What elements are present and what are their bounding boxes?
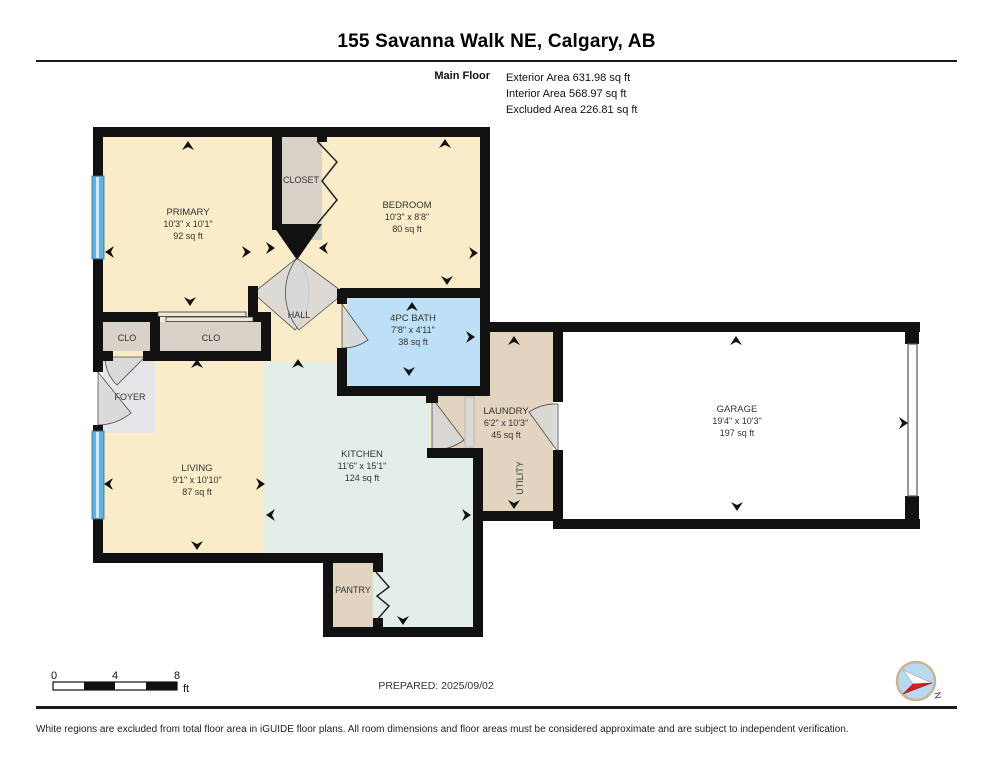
bath-dims: 7'8" x 4'11" — [391, 325, 435, 335]
kitchen-dims: 11'6" x 15'1" — [338, 461, 387, 471]
utility-label: UTILITY — [515, 461, 525, 495]
dimension-arrow — [730, 336, 742, 345]
pantry-label: PANTRY — [335, 585, 371, 595]
bath-label: 4PC BATH — [390, 313, 436, 324]
compass-north-label: N — [932, 691, 943, 699]
clo2-sliding-door — [158, 312, 253, 322]
disclaimer-text: White regions are excluded from total fl… — [36, 724, 973, 735]
bedroom-dims: 10'3" x 8'8" — [385, 212, 429, 222]
garage-area: 197 sq ft — [720, 428, 755, 438]
clo1-label: CLO — [118, 333, 137, 343]
bath-area: 38 sq ft — [398, 337, 428, 347]
laundry-door-panel — [465, 397, 474, 447]
dimension-arrow — [899, 417, 908, 429]
garage-dims: 19'4" x 10'3" — [712, 416, 761, 426]
laundry-label: LAUNDRY — [483, 406, 529, 417]
footer-divider — [36, 706, 957, 709]
scale-label-4: 4 — [112, 670, 118, 682]
primary-label: PRIMARY — [166, 207, 210, 218]
garage-overhead-door — [905, 330, 919, 520]
prepared-date: PREPARED: 2025/09/02 — [378, 680, 494, 692]
bedroom-label: BEDROOM — [382, 200, 431, 211]
hall-label: HALL — [288, 310, 311, 320]
laundry-dims: 6'2" x 10'3" — [484, 418, 528, 428]
bedroom-area: 80 sq ft — [392, 224, 422, 234]
living-window — [92, 431, 104, 519]
kitchen-area: 124 sq ft — [345, 473, 380, 483]
scale-unit: ft — [183, 683, 189, 695]
garage-door-jamb-top — [905, 330, 919, 344]
scale-label-8: 8 — [174, 670, 180, 682]
primary-area: 92 sq ft — [173, 231, 203, 241]
laundry-door-jamb — [426, 392, 438, 403]
dimension-arrow — [731, 502, 743, 511]
scale-label-0: 0 — [51, 670, 57, 682]
living-label: LIVING — [181, 463, 212, 474]
garage-door-jamb-bottom — [905, 496, 919, 520]
clo2-label: CLO — [202, 333, 221, 343]
living-area: 87 sq ft — [182, 487, 212, 497]
kitchen-label: KITCHEN — [341, 449, 383, 460]
garage-label: GARAGE — [717, 404, 758, 415]
floor-plan: PRIMARY 10'3" x 10'1" 92 sq ft CLOSET BE… — [0, 0, 993, 768]
foyer-label: FOYER — [114, 392, 146, 402]
compass-icon: N — [897, 662, 943, 700]
garage-door-panel — [908, 344, 917, 496]
closet-label: CLOSET — [283, 175, 320, 185]
primary-window — [92, 176, 104, 259]
pantry-fill — [333, 563, 373, 627]
laundry-area: 45 sq ft — [491, 430, 521, 440]
scale-bar: 0 4 8 ft — [51, 670, 189, 695]
living-dims: 9'1" x 10'10" — [172, 475, 221, 485]
primary-dims: 10'3" x 10'1" — [163, 219, 212, 229]
